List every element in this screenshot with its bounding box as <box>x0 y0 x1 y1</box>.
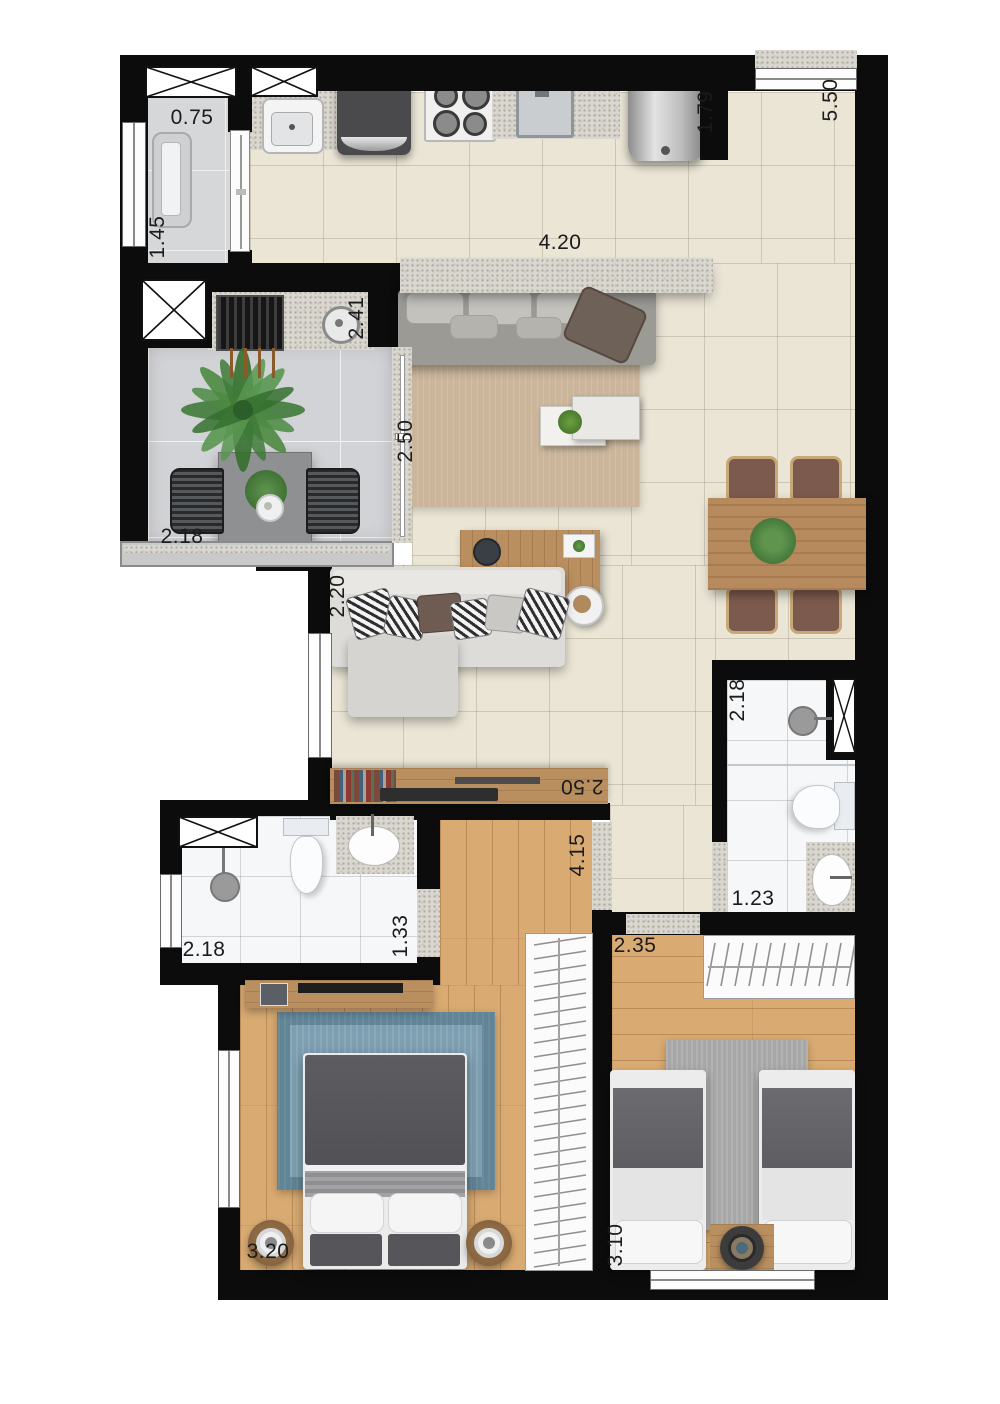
pillow <box>310 1193 384 1233</box>
dim-master-width: 3.20 <box>247 1240 290 1264</box>
dim-bedroom2-width: 2.35 <box>614 934 657 958</box>
window-sill-top <box>755 50 857 70</box>
toilet-bowl-suite <box>290 836 323 894</box>
service-window <box>122 122 146 247</box>
wall-bath-social-left <box>712 680 727 842</box>
dining-table-plant <box>750 518 796 564</box>
coffee-table-plant <box>558 410 582 434</box>
shower-partition <box>727 764 855 766</box>
faucet-social <box>830 876 852 879</box>
pillow <box>764 1220 852 1264</box>
master-window <box>218 1050 240 1208</box>
nightstand-right <box>466 1220 512 1266</box>
hallway-floor <box>610 805 715 917</box>
dim-bath-social-depth: 2.18 <box>726 679 750 722</box>
balcony-chair-right <box>306 468 360 534</box>
sofa-chaise <box>348 637 458 717</box>
dim-kitchen-island: 4.20 <box>539 231 582 255</box>
dim-bath-suite-width: 2.18 <box>183 938 226 962</box>
bath-suite-window <box>160 874 182 948</box>
duct-shaft <box>145 66 237 98</box>
dim-master-depth: 4.15 <box>566 834 590 877</box>
dim-bedroom2-depth: 3.10 <box>604 1224 628 1267</box>
tv <box>298 983 403 993</box>
living-window-left <box>308 633 332 758</box>
coffee-table-upper <box>572 396 640 440</box>
dim-living-depth: 5.50 <box>819 79 843 122</box>
duct-shaft <box>178 816 258 848</box>
shower-arm-suite <box>222 846 225 874</box>
toilet-bowl-social <box>792 785 840 829</box>
duct-shaft <box>250 66 318 97</box>
desk-keyboard <box>455 777 540 784</box>
grill-skewers <box>228 348 284 380</box>
desk-mat <box>380 788 498 801</box>
shower-head-suite <box>210 872 240 902</box>
dim-grill-counter: 2.41 <box>345 297 369 340</box>
dim-balcony-depth: 2.50 <box>394 420 418 463</box>
decor-bowl <box>473 538 501 566</box>
dim-water-heater: 1.79 <box>694 91 718 134</box>
duvet <box>613 1088 703 1168</box>
toilet-tank-suite <box>283 818 329 836</box>
master-wardrobe <box>525 933 593 1271</box>
plant-pot <box>256 494 284 522</box>
bath-suite-door-threshold <box>417 889 440 957</box>
bath-social-door-threshold <box>712 842 727 912</box>
wall-kitchen-grill <box>212 263 392 292</box>
pillow <box>615 1220 703 1264</box>
dining-chair <box>790 586 842 634</box>
wall-bath-social-bottom <box>712 912 888 935</box>
service-fixture <box>152 132 192 228</box>
pillow <box>388 1193 462 1233</box>
service-sliding-door <box>230 130 250 252</box>
duvet <box>762 1088 852 1168</box>
kitchen-sink <box>516 86 574 138</box>
master-door-threshold <box>592 822 612 910</box>
dim-service-width: 0.75 <box>171 106 214 130</box>
bedroom2-wardrobe <box>703 935 855 999</box>
sink-social <box>812 854 852 906</box>
dim-living-wall: 2.20 <box>326 575 350 618</box>
headboard-cushion <box>388 1234 460 1266</box>
bedroom2-window <box>650 1270 815 1290</box>
shower-head-social <box>788 706 818 736</box>
master-bed <box>303 1053 467 1269</box>
decor-tray <box>563 534 595 558</box>
photo-frame <box>260 983 288 1006</box>
dim-service-depth: 1.45 <box>146 216 170 259</box>
faucet-suite <box>371 814 374 836</box>
bedside-table <box>720 1226 764 1270</box>
barbecue-grill <box>216 295 284 351</box>
sink-suite <box>348 826 400 866</box>
kitchen-island-counter <box>400 258 713 293</box>
bedroom2-door-threshold <box>626 914 700 934</box>
dim-desk-wall: 2.50 <box>561 774 604 798</box>
wall-bath-suite-right-upper <box>417 800 440 889</box>
dim-bath-social-width: 1.23 <box>732 887 775 911</box>
dresser <box>245 980 433 1008</box>
duct-shaft <box>141 279 207 341</box>
duvet <box>305 1055 465 1165</box>
duct-shaft <box>832 678 856 754</box>
dining-chair <box>790 456 842 504</box>
dining-chair <box>726 456 778 504</box>
floor-plan: 0.75 1.45 2.41 4.20 1.79 5.50 2.18 2.50 … <box>0 0 1000 1404</box>
dim-balcony-width: 2.18 <box>161 525 204 549</box>
dim-bath-suite-depth: 1.33 <box>389 915 413 958</box>
wall-right <box>855 55 888 1300</box>
side-table <box>564 586 604 626</box>
headboard-cushion <box>310 1234 382 1266</box>
laundry-tub <box>262 98 324 154</box>
dining-chair <box>726 586 778 634</box>
